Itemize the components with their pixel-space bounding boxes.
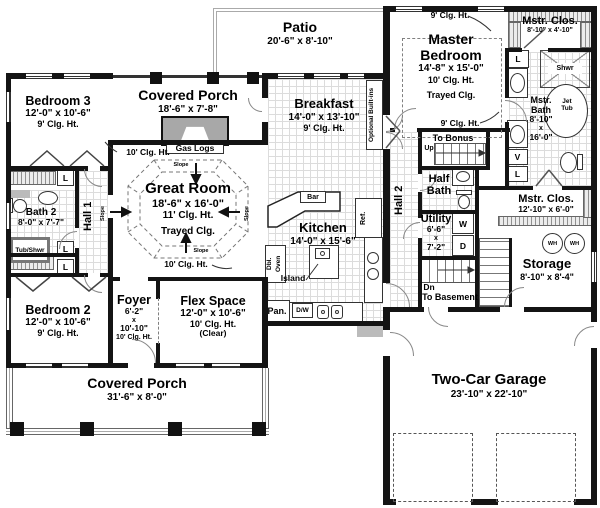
island-dot-icon: [320, 251, 325, 256]
half-bath-label: Half Bath: [418, 173, 460, 198]
wall: [505, 122, 509, 188]
great-room-clg-note-bottom: 10' Clg. Ht.: [158, 260, 214, 270]
patio-label: Patio 20'-6" x 8'-10": [230, 20, 370, 47]
bedroom2-clg: 9' Clg. Ht.: [8, 328, 108, 338]
bedroom3-dims: 12'-0" x 10'-6": [8, 108, 108, 119]
great-room-clg-note-top: 10' Clg. Ht.: [120, 148, 176, 158]
bedroom3-label: Bedroom 3 12'-0" x 10'-6" 9' Clg. Ht.: [8, 94, 108, 129]
porch-rail: [6, 368, 13, 428]
island-label: Island: [278, 274, 308, 284]
bath2-vanity: [8, 190, 30, 198]
wall: [508, 48, 522, 52]
window: [176, 363, 204, 368]
wall: [262, 321, 390, 326]
shower-label: Shwr: [548, 63, 582, 74]
garage-name: Two-Car Garage: [404, 372, 574, 389]
porch-top-name: Covered Porch: [115, 88, 261, 104]
porch-column: [252, 422, 266, 436]
porch-bottom-label: Covered Porch 31'-6" x 8'-0": [62, 376, 212, 403]
wall: [383, 307, 424, 312]
pantry-label: Pan.: [263, 306, 291, 316]
patio-dims: 20'-6" x 8'-10": [230, 36, 370, 47]
porch-column: [247, 72, 259, 84]
linen-closet: L: [507, 166, 528, 182]
wall: [6, 273, 88, 277]
great-room-tray: Trayed Clg.: [126, 226, 250, 237]
storage-label: Storage 8'-10" x 8'-4": [504, 257, 590, 282]
wall: [6, 253, 79, 257]
slope-label: Slope: [244, 202, 252, 226]
window: [348, 73, 364, 79]
master-bath-d3: 16'-0": [521, 133, 561, 143]
sink-drain-icon: [321, 310, 325, 314]
vanity-cabinet: V: [507, 149, 528, 165]
sink-drain-icon: [335, 310, 339, 314]
master-closet-top-dims: 8'-10" x 4'-10": [506, 27, 594, 35]
master-clg-note-top: 9' Clg. Ht.: [420, 11, 480, 21]
bedroom2-dims: 12'-0" x 10'-6": [8, 317, 108, 328]
garage-door-outline: [496, 433, 576, 502]
porch-top-label: Covered Porch 18'-6" x 7'-8": [115, 88, 261, 115]
window: [396, 6, 422, 12]
master-name-2: Bedroom: [398, 48, 504, 64]
patio-name: Patio: [230, 20, 370, 36]
bedroom2-label: Bedroom 2 12'-0" x 10'-6" 9' Clg. Ht.: [8, 303, 108, 338]
master-bath-label: Mstr. Bath 8'-10" x 16'-0": [521, 95, 561, 142]
bath2-dims: 8'-0" x 7'-7": [10, 218, 72, 228]
great-room-label: Great Room 18'-6" x 16'-0" 11' Clg. Ht. …: [126, 181, 250, 237]
storage-dims: 8'-10" x 8'-4": [504, 272, 590, 282]
half-bath-name-1: Half: [418, 173, 460, 185]
wall: [108, 140, 113, 195]
wall: [383, 356, 390, 505]
master-closet-top-name: Mstr. Clos.: [506, 15, 594, 27]
window: [314, 73, 340, 79]
master-bath-name-1: Mstr.: [521, 95, 561, 105]
hall2-label: Hall 2: [393, 174, 410, 226]
garage-door-outline: [393, 433, 473, 502]
porch-bottom-name: Covered Porch: [62, 376, 212, 392]
slope-label: Slope: [190, 248, 212, 254]
utility-d1: 6'-6": [416, 225, 456, 235]
porch-column: [168, 422, 182, 436]
bedroom3-name: Bedroom 3: [8, 94, 108, 108]
wall: [108, 140, 266, 145]
bedroom2-name: Bedroom 2: [8, 303, 108, 317]
wall: [156, 343, 160, 368]
flex-space-dims: 12'-0" x 10'-6": [162, 308, 264, 319]
basement-stairs: [420, 258, 476, 283]
window: [26, 363, 52, 368]
up-label: Up: [421, 145, 437, 153]
master-closet-bottom-dims: 12'-10" x 6'-0": [498, 205, 594, 215]
wall: [148, 277, 267, 281]
porch-column: [150, 72, 162, 84]
porch-beam: [113, 75, 264, 78]
master-tray: Trayed Clg.: [398, 90, 504, 100]
wall: [418, 166, 490, 170]
great-room-name: Great Room: [126, 181, 250, 198]
burner-icon: [367, 268, 379, 280]
flex-cased-opening: [158, 298, 160, 344]
wall: [418, 256, 479, 260]
porch-rail: [262, 368, 269, 428]
foyer-d1: 6'-2": [110, 307, 158, 317]
floor-plan: Gas Logs Optional Built-ins Ref. Dbl. Ov…: [0, 0, 600, 508]
master-closet-top-label: Mstr. Clos. 8'-10" x 4'-10": [506, 15, 594, 35]
flex-space-note: (Clear): [162, 329, 264, 339]
porch-column: [207, 72, 219, 84]
linen-closet: L: [57, 259, 74, 274]
wall: [574, 499, 597, 505]
porch-column: [80, 422, 94, 436]
master-bath-d1: 8'-10": [521, 115, 561, 125]
bedroom3-clg: 9' Clg. Ht.: [8, 119, 108, 129]
bath2-label: Bath 2 8'-0" x 7'-7": [10, 207, 72, 228]
flex-space-name: Flex Space: [162, 294, 264, 308]
linen-closet: L: [57, 169, 74, 186]
porch-top-dims: 18'-6" x 7'-8": [115, 104, 261, 115]
window: [64, 73, 90, 79]
porch-bottom-dims: 31'-6" x 8'-0": [62, 392, 212, 403]
wall: [75, 166, 79, 228]
wall: [448, 307, 500, 312]
wall: [471, 499, 498, 505]
tub-shower: Tub/Shwr: [10, 237, 50, 263]
wall: [548, 48, 597, 52]
master-sink: [510, 73, 525, 93]
wall: [524, 307, 597, 312]
half-bath-name-2: Bath: [418, 185, 460, 197]
burner-icon: [367, 252, 379, 264]
great-room-clg: 11' Clg. Ht.: [126, 210, 250, 221]
wall: [262, 73, 268, 98]
breakfast-dims: 14'-0" x 13'-10": [268, 112, 380, 123]
window: [62, 363, 88, 368]
porch-column: [10, 422, 24, 436]
foyer-d3: 10'-10": [110, 324, 158, 334]
great-room-dims: 18'-6" x 16'-0": [126, 198, 250, 210]
wall: [383, 149, 390, 283]
master-dims: 14'-8" x 15'-0": [398, 63, 504, 74]
master-toilet: [560, 152, 577, 173]
breakfast-name: Breakfast: [268, 97, 380, 112]
kitchen-island: [309, 245, 339, 279]
utility-d3: 7'-2": [416, 243, 456, 253]
foyer-label: Foyer 6'-2" x 10'-10" 10' Clg. Ht.: [110, 293, 158, 342]
storage-name: Storage: [504, 257, 590, 272]
wall: [562, 186, 597, 190]
window: [278, 73, 304, 79]
master-label: Master Bedroom 14'-8" x 15'-0" 10' Clg. …: [398, 32, 504, 100]
bar-label: Bar: [300, 191, 326, 203]
master-clg-note-bottom: 9' Clg. Ht.: [430, 119, 490, 129]
window: [478, 6, 504, 12]
to-bonus-label: To Bonus: [422, 133, 484, 143]
window: [212, 363, 240, 368]
closet-hatch: [498, 216, 592, 226]
breakfast-label: Breakfast 14'-0" x 13'-10" 9' Clg. Ht.: [268, 97, 380, 133]
water-heater: WH: [542, 233, 563, 254]
slope-label: Slope: [100, 202, 108, 226]
master-name-1: Master: [398, 32, 504, 48]
flex-space-label: Flex Space 12'-0" x 10'-6" 10' Clg. Ht. …: [162, 294, 264, 339]
porch-rail: [6, 428, 269, 435]
foyer-name: Foyer: [110, 293, 158, 307]
window: [591, 252, 597, 282]
garage-dims: 23'-10" x 22'-10": [404, 389, 574, 400]
to-basement-label: To Basement: [418, 292, 482, 302]
wall: [505, 48, 509, 98]
breakfast-clg: 9' Clg. Ht.: [268, 123, 380, 133]
foyer-clg: 10' Clg. Ht.: [110, 334, 158, 342]
kitchen-name: Kitchen: [270, 221, 376, 236]
linen-closet: L: [507, 50, 529, 68]
water-heater: WH: [564, 233, 585, 254]
wall: [6, 73, 113, 79]
kitchen-dims: 14'-0" x 15'-6": [270, 236, 376, 247]
wall: [383, 6, 390, 115]
wall: [108, 218, 113, 277]
double-oven-label-1: Dbl.: [266, 247, 275, 281]
window: [26, 73, 52, 79]
wall: [479, 186, 533, 190]
hall1-label: Hall 1: [82, 190, 98, 242]
wall: [154, 363, 266, 368]
master-closet-bottom-label: Mstr. Clos. 12'-10" x 6'-0": [498, 193, 594, 215]
bonus-stairs: [434, 143, 486, 165]
utility-label: Utility 6'-6" x 7'-2": [416, 213, 456, 252]
closet-hatch: [8, 171, 56, 185]
master-clg: 10' Clg. Ht.: [398, 75, 504, 85]
master-toilet-tank: [577, 154, 583, 170]
bath2-sink: [38, 191, 58, 205]
dishwasher: D/W: [292, 303, 313, 318]
kitchen-label: Kitchen 14'-0" x 15'-6": [270, 221, 376, 247]
slope-label: Slope: [170, 162, 192, 168]
garage-label: Two-Car Garage 23'-10" x 22'-10": [404, 372, 574, 400]
